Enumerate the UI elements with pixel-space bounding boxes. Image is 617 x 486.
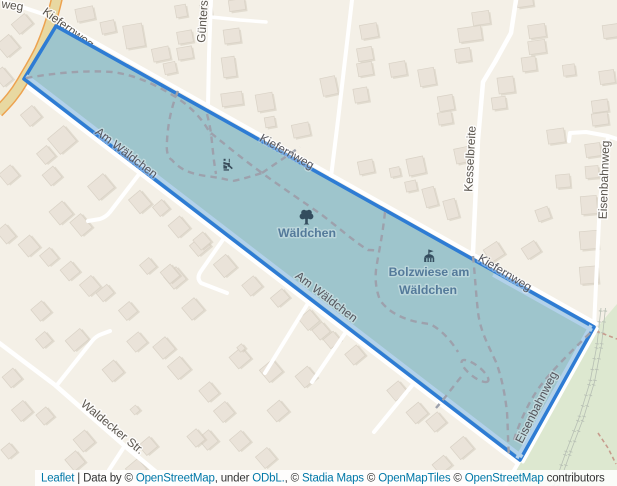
- svg-text:Bolzwiese am: Bolzwiese am: [389, 265, 470, 279]
- svg-text:Wäldchen: Wäldchen: [278, 226, 336, 240]
- svg-text:Eisenbahnweg: Eisenbahnweg: [596, 140, 613, 219]
- svg-text:Leaflet | Data by © OpenStreet: Leaflet | Data by © OpenStreetMap, under…: [41, 473, 605, 485]
- svg-text:Wäldchen: Wäldchen: [399, 283, 457, 297]
